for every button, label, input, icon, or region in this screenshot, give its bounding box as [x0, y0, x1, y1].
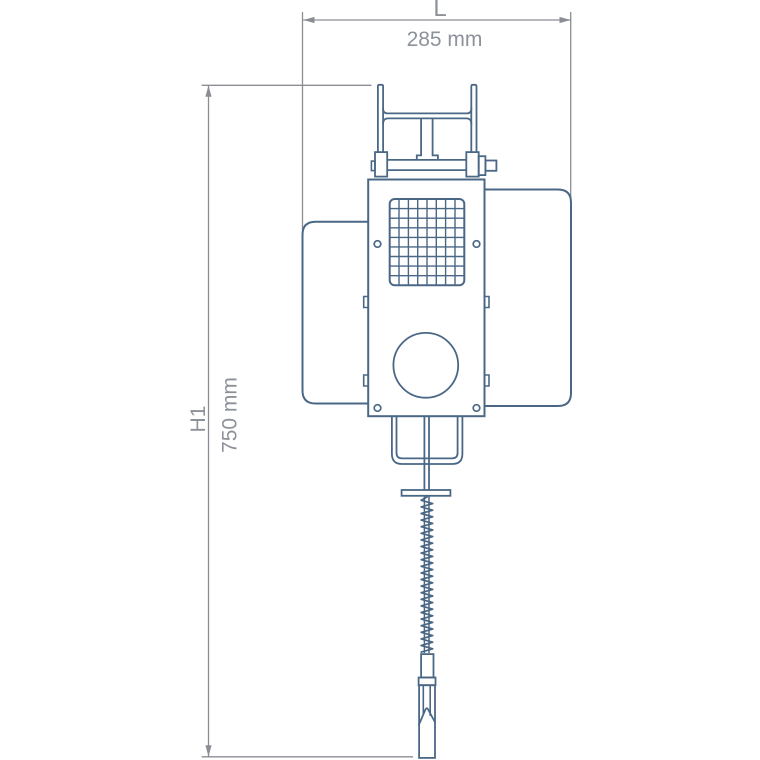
svg-text:L: L — [433, 0, 446, 22]
svg-text:285 mm: 285 mm — [407, 28, 483, 51]
svg-text:H1: H1 — [187, 406, 210, 433]
svg-text:750 mm: 750 mm — [219, 377, 242, 453]
